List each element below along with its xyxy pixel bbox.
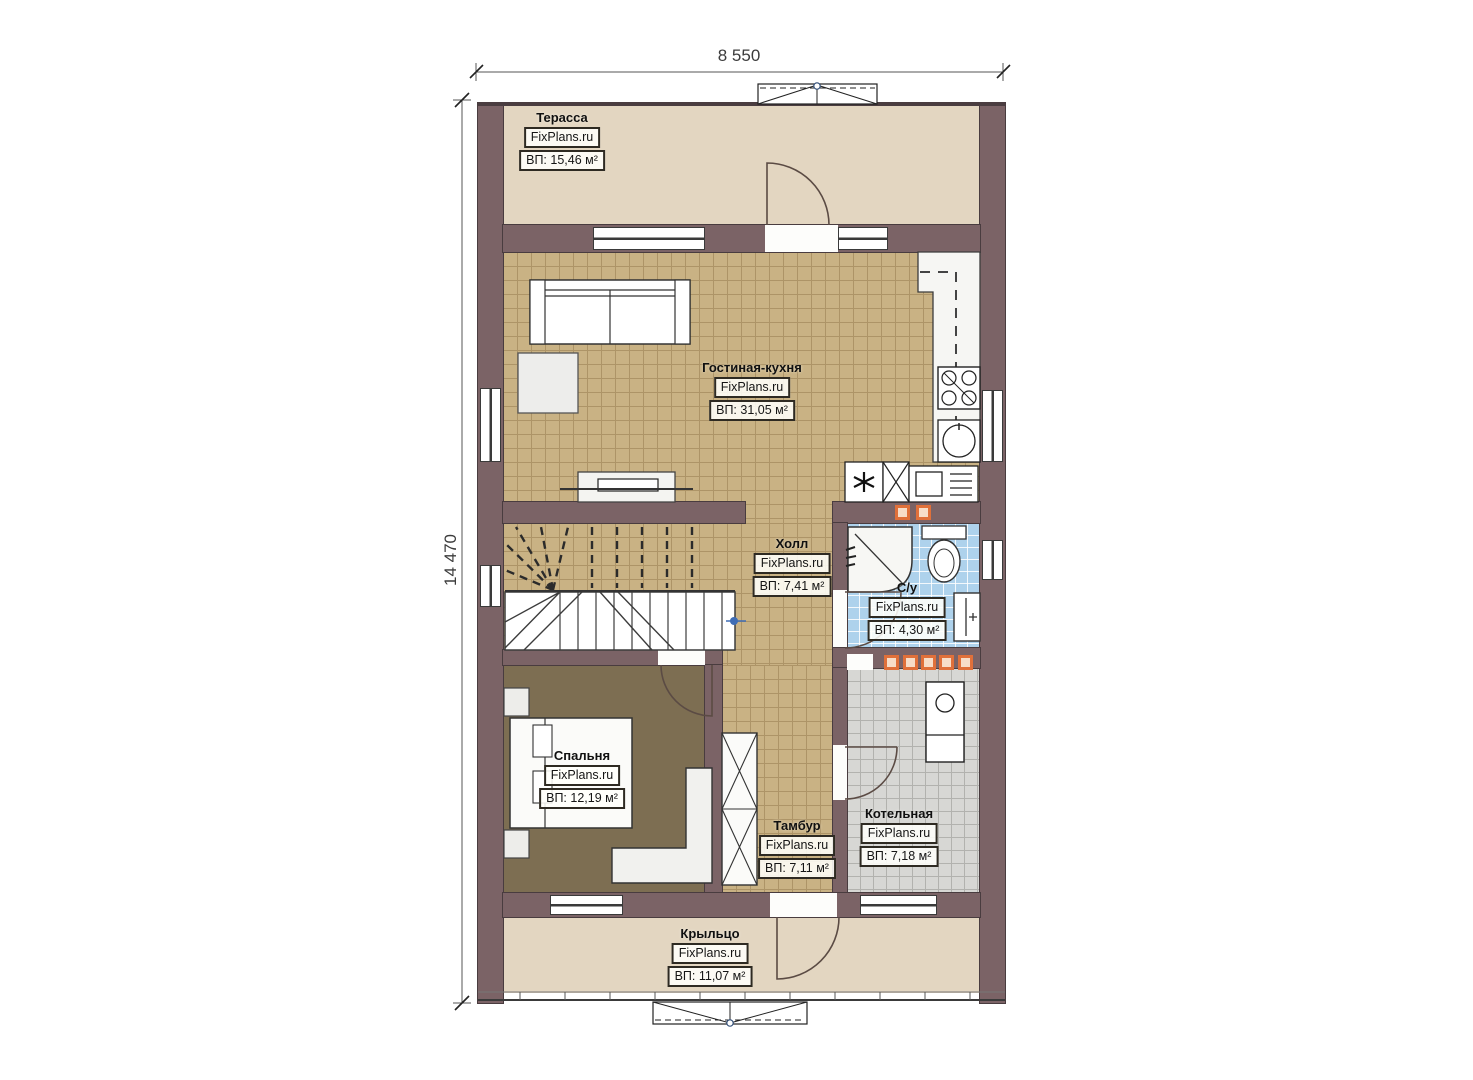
brand-watermark: FixPlans.ru [759,835,836,856]
flue-square [895,505,910,520]
room-title: Спальня [539,748,625,763]
room-area: ВП: 7,41 м² [753,576,832,597]
room-title: Терасса [519,110,605,125]
window-living-top [593,227,705,250]
terrace-edge-wall [478,102,1005,106]
room-label-bedroom: Спальня FixPlans.ru ВП: 12,19 м² [539,748,625,809]
wall-living-hall [503,502,745,523]
brand-watermark: FixPlans.ru [754,553,831,574]
room-title: Холл [753,536,832,551]
room-area: ВП: 12,19 м² [539,788,625,809]
room-title: Тамбур [758,818,836,833]
room-label-vestibule: Тамбур FixPlans.ru ВП: 7,11 м² [758,818,836,879]
room-title: С/у [868,580,947,595]
floor-plan: Терасса FixPlans.ru ВП: 15,46 м² Гостина… [0,0,1473,1080]
room-area: ВП: 7,18 м² [860,846,939,867]
brand-watermark: FixPlans.ru [672,943,749,964]
dimension-width-label: 8 550 [718,46,761,66]
flue-square [884,655,899,670]
exterior-wall-left [478,103,503,1003]
room-title: Крыльцо [668,926,753,941]
porch-deck-edge [478,992,1005,1000]
terrace-door-opening [765,225,838,252]
canopy-symbol-top [758,83,877,104]
brand-watermark: FixPlans.ru [714,377,791,398]
dimension-height-label: 14 470 [441,534,461,586]
bathroom-door-opening [833,590,847,647]
room-label-bathroom: С/у FixPlans.ru ВП: 4,30 м² [868,580,947,641]
window-boiler-bottom [860,895,937,915]
window-living-left [480,388,501,462]
brand-watermark: FixPlans.ru [544,765,621,786]
room-label-hall: Холл FixPlans.ru ВП: 7,41 м² [753,536,832,597]
flue-square [939,655,954,670]
room-area: ВП: 31,05 м² [709,400,795,421]
room-label-terrace: Терасса FixPlans.ru ВП: 15,46 м² [519,110,605,171]
window-kitchen-right [982,390,1003,462]
flue-square [903,655,918,670]
flue-square [921,655,936,670]
room-label-boiler: Котельная FixPlans.ru ВП: 7,18 м² [860,806,939,867]
window-kitchen-top [838,227,888,250]
room-area: ВП: 7,11 м² [758,858,836,879]
room-title: Котельная [860,806,939,821]
bedroom-door-opening [658,650,705,665]
brand-watermark: FixPlans.ru [869,597,946,618]
room-label-living-kitchen: Гостиная-кухня FixPlans.ru ВП: 31,05 м² [702,360,802,421]
room-label-porch: Крыльцо FixPlans.ru ВП: 11,07 м² [668,926,753,987]
flue-square [916,505,931,520]
entry-door-opening [770,893,837,917]
room-area: ВП: 4,30 м² [868,620,947,641]
room-area: ВП: 11,07 м² [668,966,753,987]
room-area: ВП: 15,46 м² [519,150,605,171]
wall-bedroom-vestibule [705,665,722,893]
boiler-door-opening [833,745,847,800]
window-stairs-left [480,565,501,607]
wall-terrace-living [503,225,980,252]
brand-watermark: FixPlans.ru [524,127,601,148]
brand-watermark: FixPlans.ru [861,823,938,844]
window-bedroom-bottom [550,895,623,915]
window-bathroom-right [982,540,1003,580]
flue-square [958,655,973,670]
boiler-wall-niche [847,654,873,670]
canopy-symbol-bottom [653,1002,807,1026]
room-title: Гостиная-кухня [702,360,802,375]
